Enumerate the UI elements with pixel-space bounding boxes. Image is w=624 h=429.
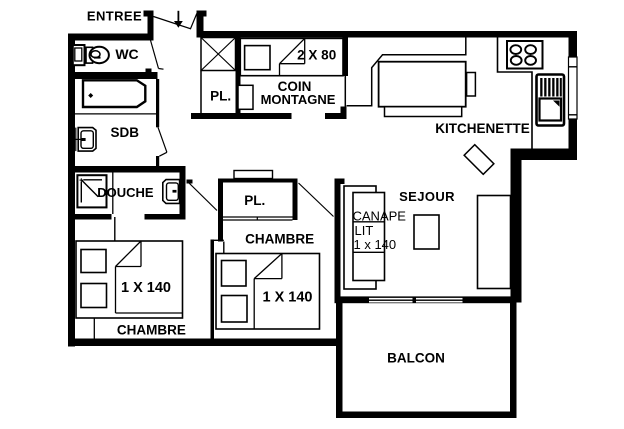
svg-text:CHAMBRE: CHAMBRE [117, 323, 186, 338]
svg-text:WC: WC [115, 46, 138, 62]
svg-text:CHAMBRE: CHAMBRE [245, 232, 314, 247]
svg-text:LIT: LIT [355, 223, 374, 238]
svg-text:PL.: PL. [244, 193, 265, 208]
svg-text:2 X 80: 2 X 80 [297, 48, 336, 63]
svg-text:KITCHENETTE: KITCHENETTE [435, 121, 530, 136]
svg-text:SEJOUR: SEJOUR [399, 189, 455, 204]
svg-text:ENTREE: ENTREE [87, 9, 142, 24]
svg-text:SDB: SDB [111, 125, 140, 140]
svg-text:CANAPE: CANAPE [353, 208, 407, 223]
svg-text:1 X 140: 1 X 140 [263, 290, 313, 306]
svg-text:MONTAGNE: MONTAGNE [261, 92, 336, 107]
svg-text:1 X 140: 1 X 140 [121, 280, 171, 296]
svg-text:1 x 140: 1 x 140 [354, 237, 397, 252]
svg-text:PL.: PL. [210, 89, 231, 104]
svg-text:DOUCHE: DOUCHE [97, 185, 154, 200]
svg-text:BALCON: BALCON [387, 351, 445, 366]
